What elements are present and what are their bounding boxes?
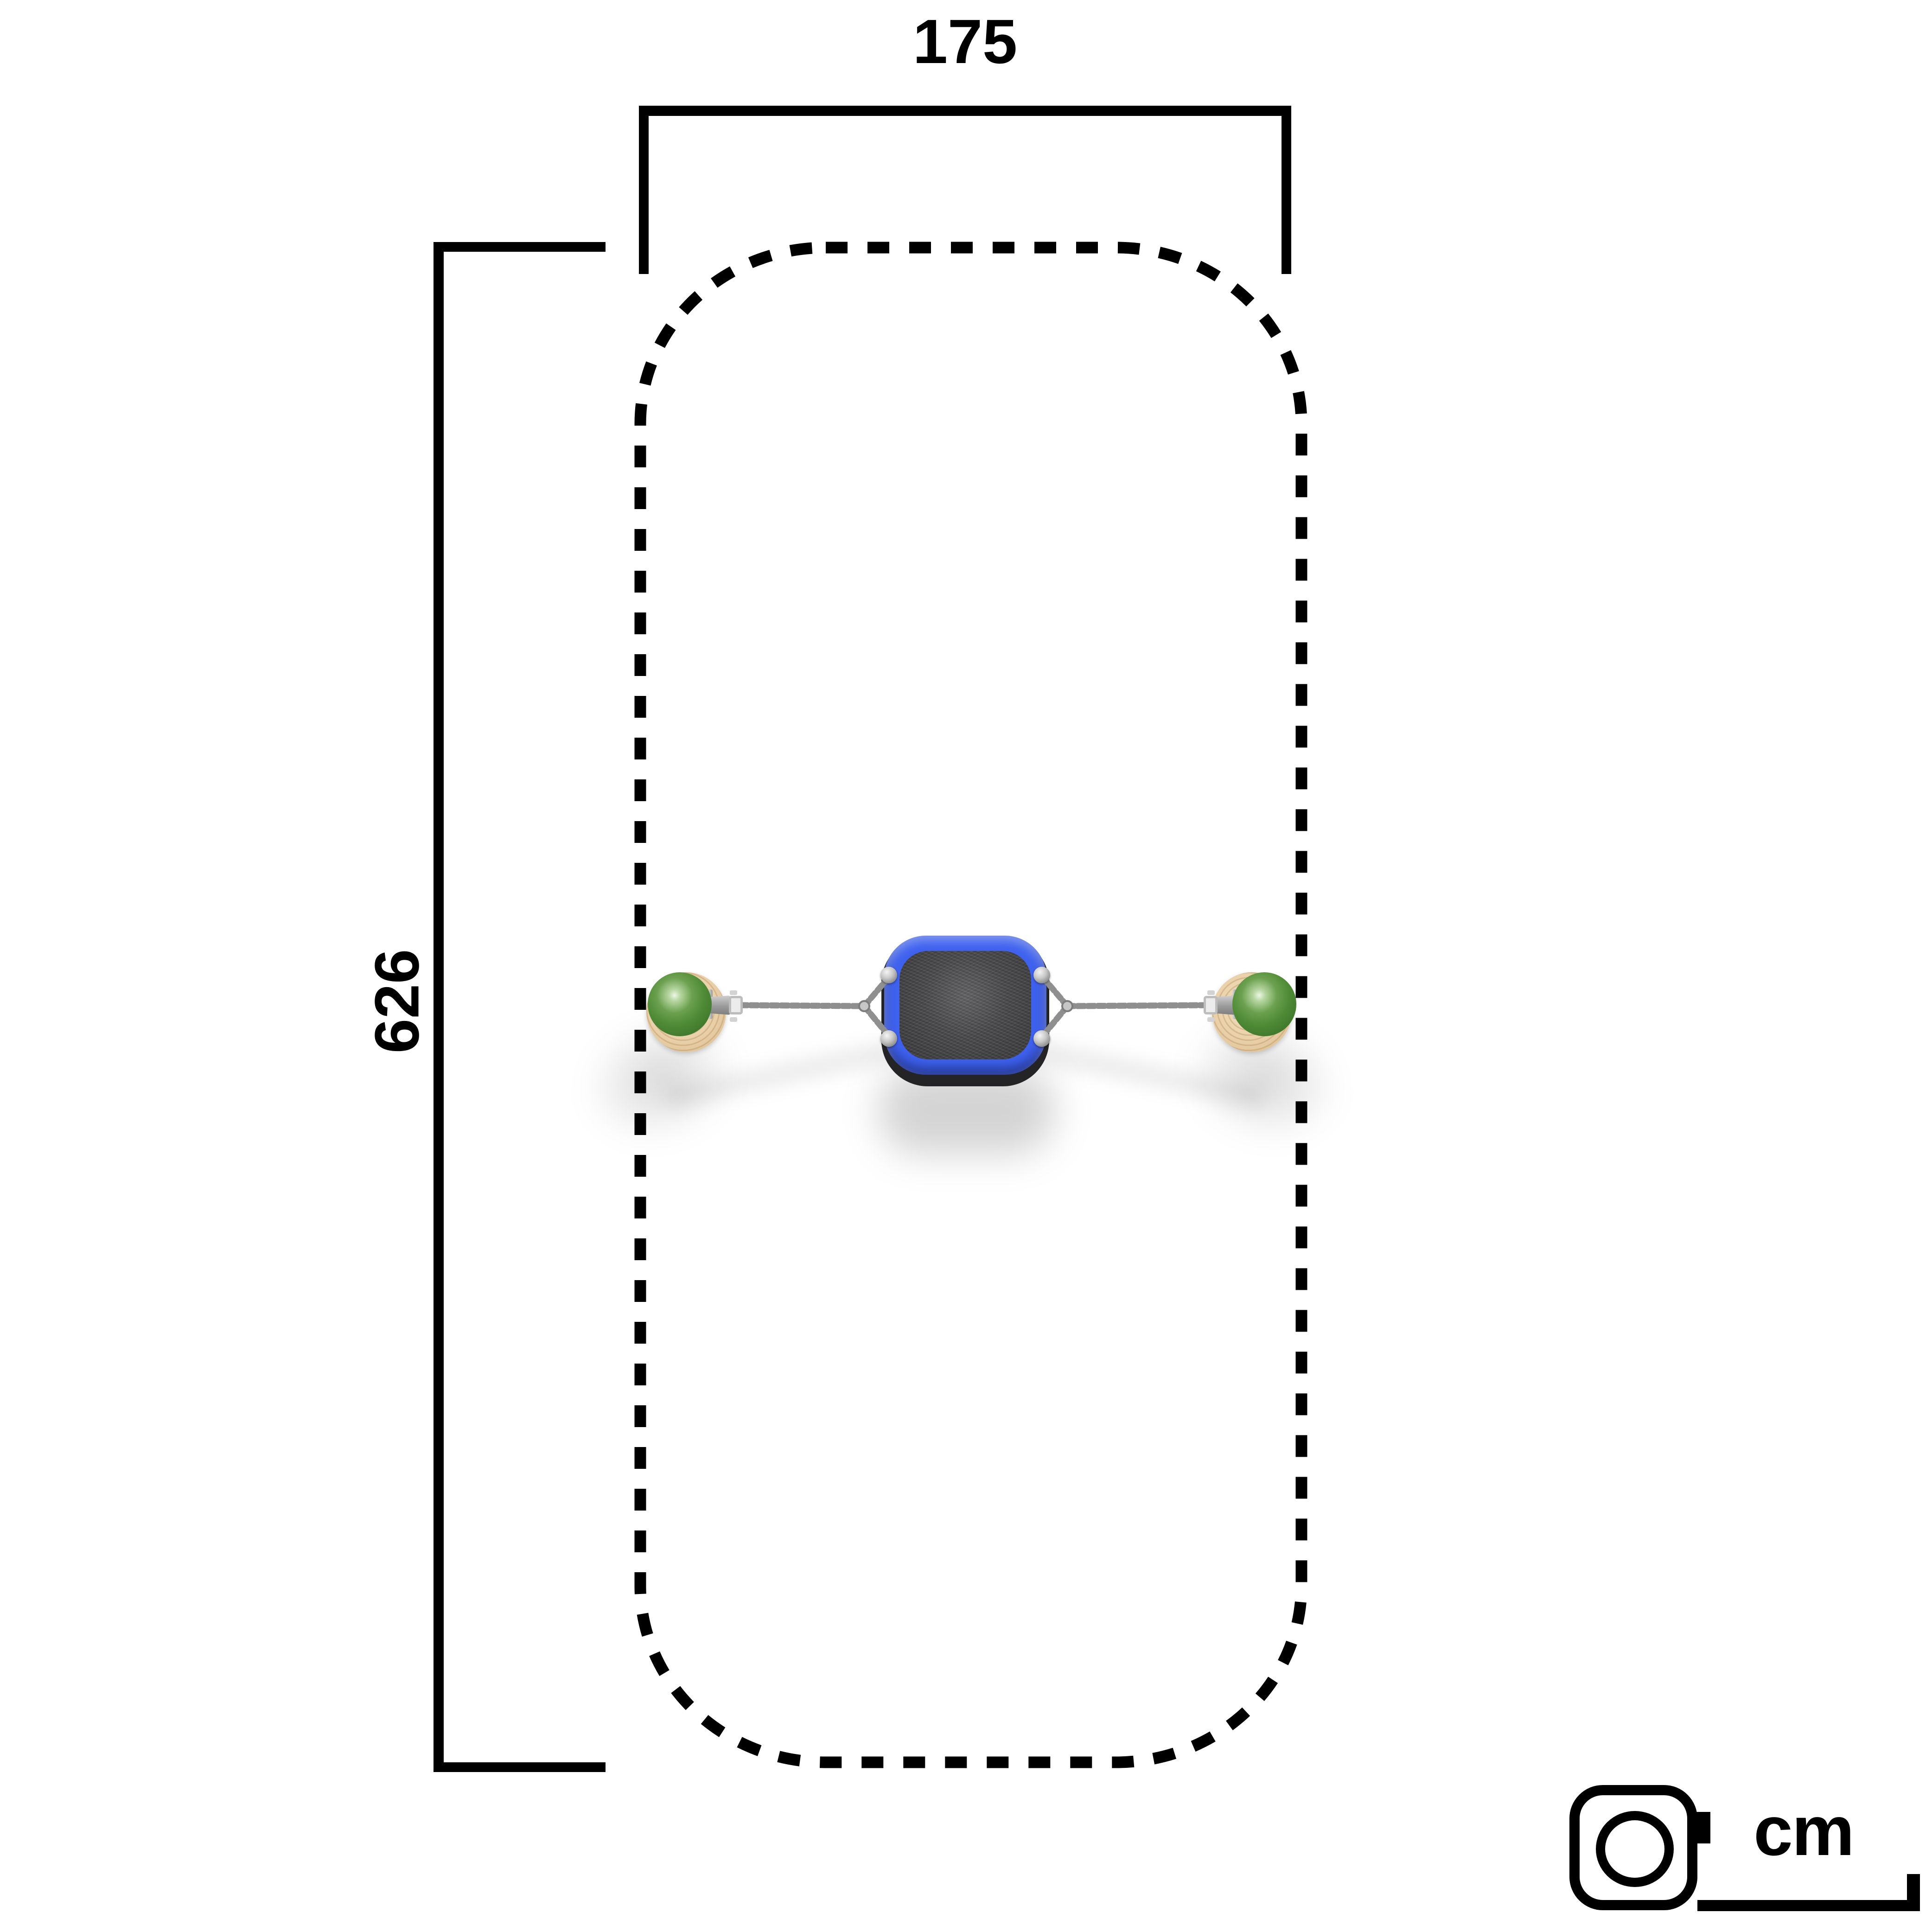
height-dimension-bracket — [434, 242, 606, 1772]
right-green-ball-cap — [1232, 972, 1296, 1036]
left-green-ball-cap — [648, 972, 712, 1036]
left-fitting-pin-bottom — [730, 1017, 737, 1022]
width-dimension-label: 175 — [639, 10, 1291, 73]
right-chain-shackle — [1204, 996, 1218, 1014]
zone-and-chains-layer — [0, 0, 1932, 1932]
tape-measure-hook-icon — [1907, 1874, 1920, 1911]
tape-measure-band-icon — [1697, 1900, 1920, 1911]
right-fitting-pin-bottom — [1207, 1017, 1215, 1022]
left-post-fitting — [710, 995, 731, 1015]
left-fitting-pin-top — [730, 990, 737, 995]
seat-lug-top-right — [1033, 967, 1050, 983]
right-chain-ring — [1062, 1001, 1072, 1011]
tape-measure-reel-icon — [1596, 1811, 1674, 1887]
dimension-diagram: 175 626 cm — [0, 0, 1932, 1932]
seat-lug-bottom-left — [880, 1030, 897, 1047]
right-main-chain — [1067, 1005, 1205, 1006]
height-dimension-label: 626 — [366, 862, 428, 1141]
left-main-chain — [740, 1005, 864, 1006]
chains — [740, 976, 1205, 1038]
seat-lug-bottom-right — [1033, 1030, 1050, 1047]
left-chain-ring — [859, 1001, 869, 1011]
seat-lug-top-left — [880, 967, 897, 983]
right-fitting-pin-top — [1207, 990, 1215, 995]
width-dimension-bracket — [639, 106, 1291, 274]
unit-label: cm — [1734, 1796, 1873, 1866]
left-chain-shackle — [729, 996, 743, 1014]
tape-measure-exit-icon — [1696, 1812, 1710, 1843]
